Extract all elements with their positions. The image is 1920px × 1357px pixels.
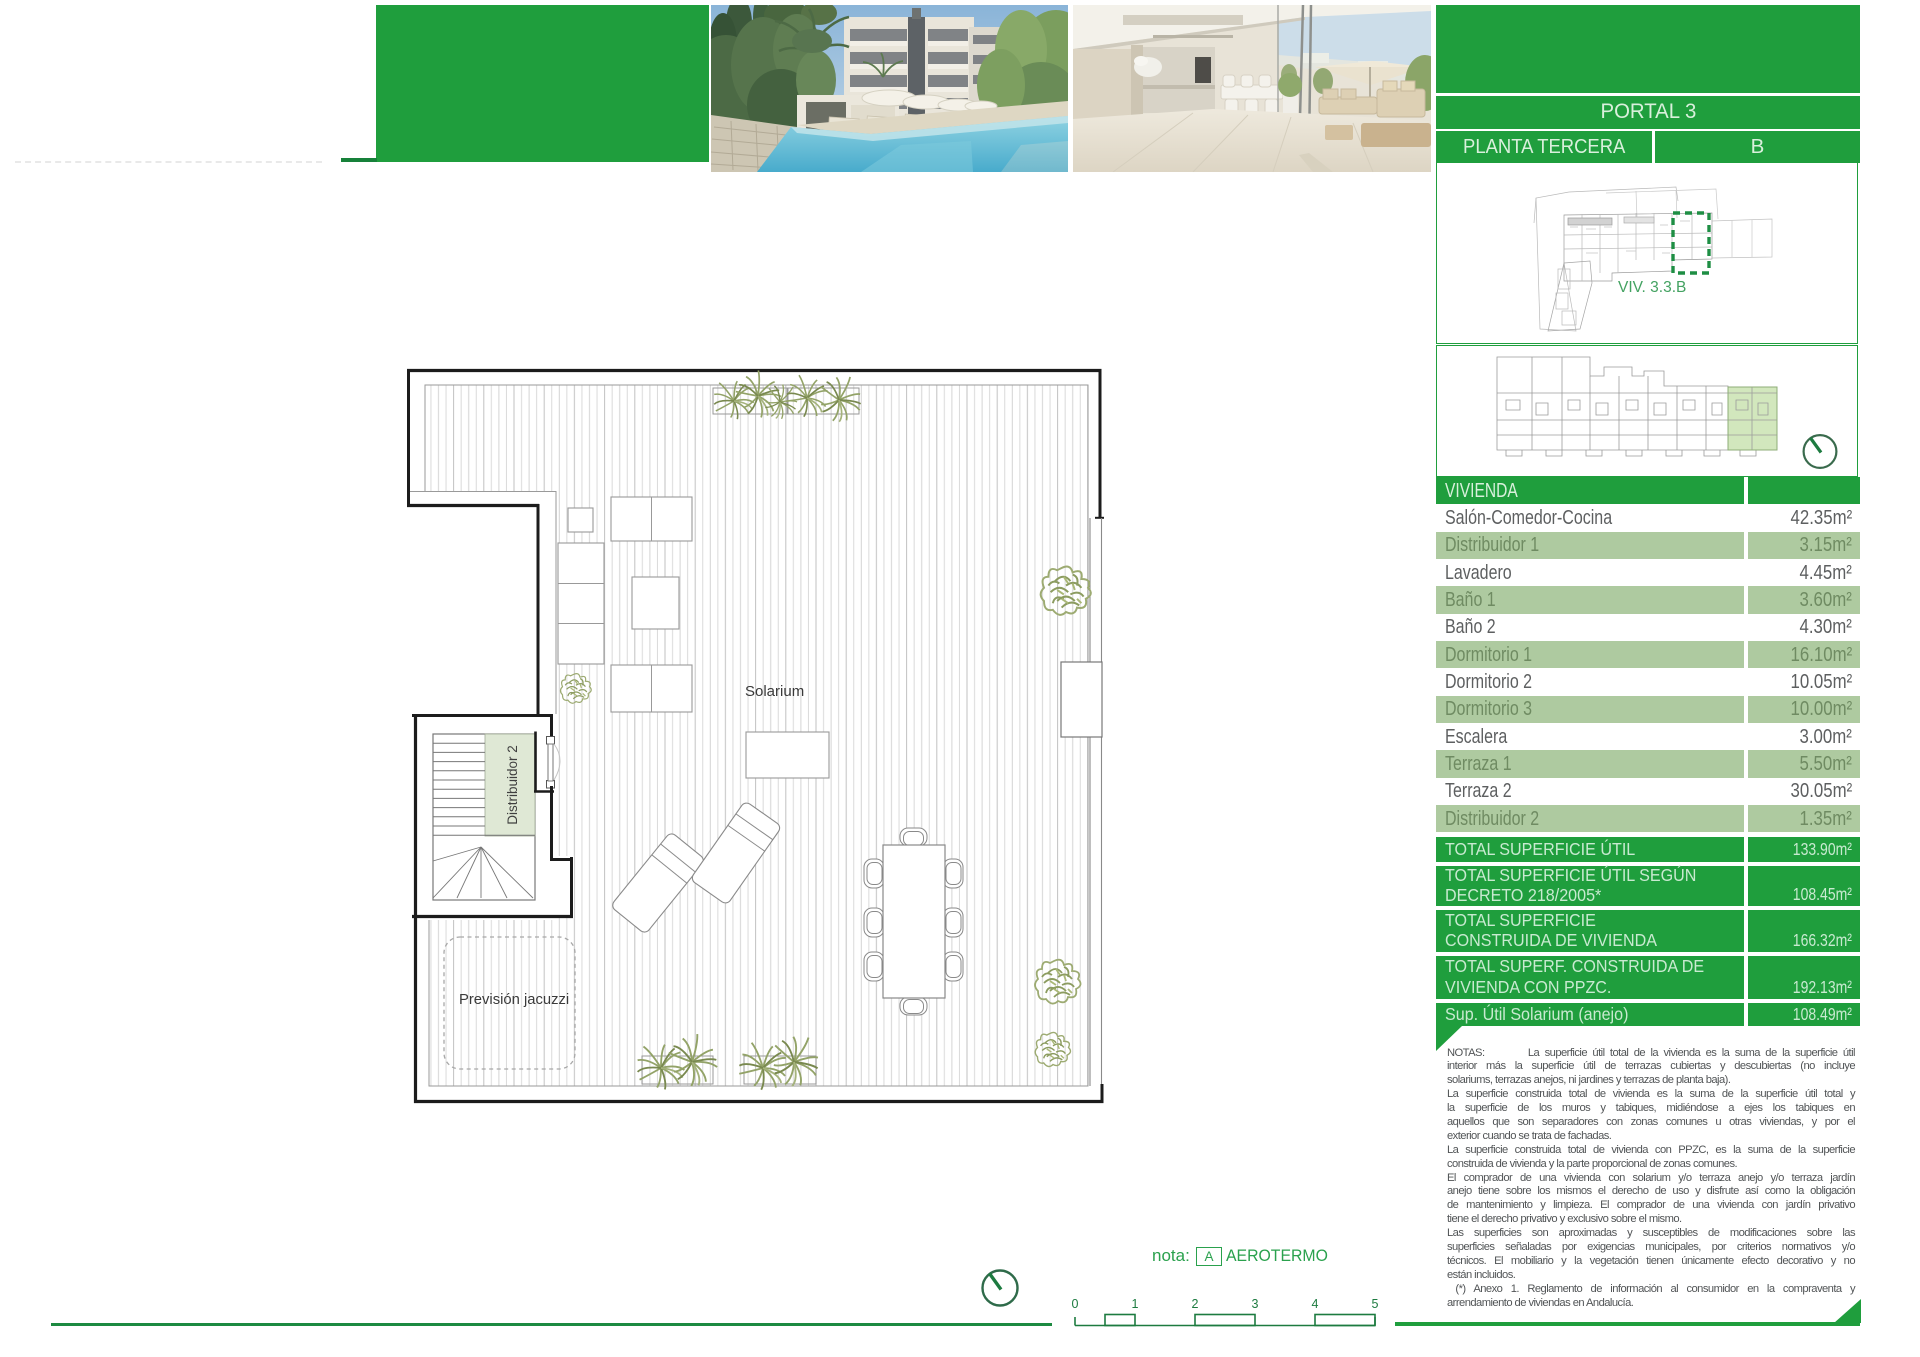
svg-text:3: 3 [1252,1297,1259,1311]
svg-text:Previsión jacuzzi: Previsión jacuzzi [459,992,569,1008]
svg-text:VIV. 3.3.B: VIV. 3.3.B [1618,279,1686,296]
svg-text:5: 5 [1372,1297,1379,1311]
svg-text:4: 4 [1312,1297,1319,1311]
svg-text:Solarium: Solarium [745,683,804,700]
svg-text:1: 1 [1132,1297,1139,1311]
svg-text:2: 2 [1192,1297,1199,1311]
svg-text:0: 0 [1072,1297,1079,1311]
svg-text:Distribuidor 2: Distribuidor 2 [505,745,520,825]
